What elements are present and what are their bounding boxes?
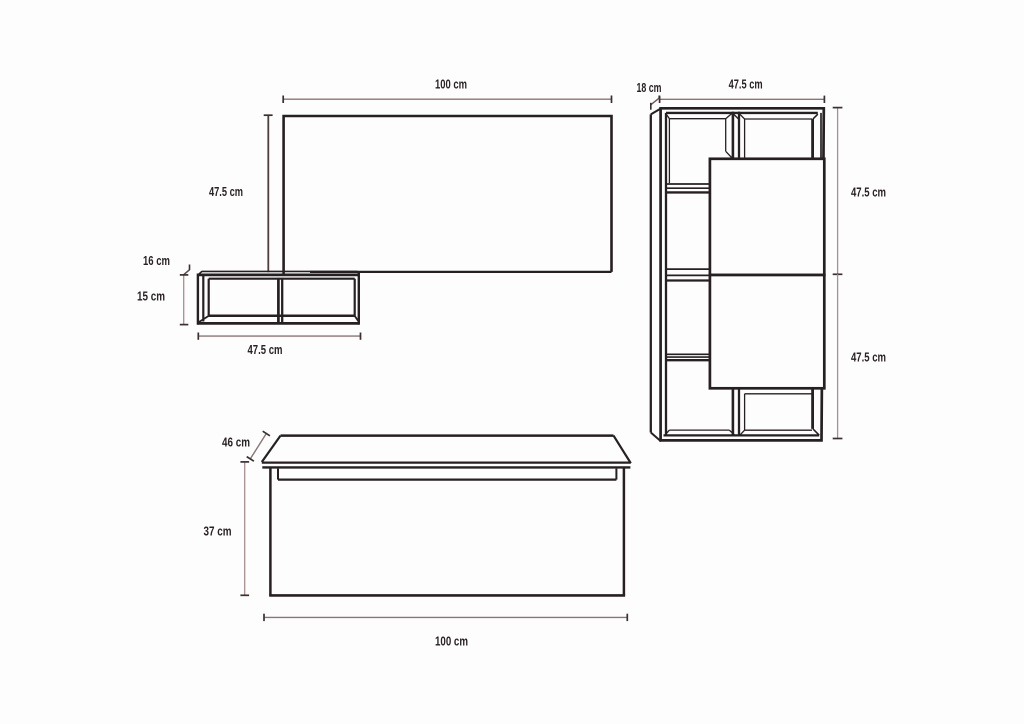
svg-text:100 cm: 100 cm [435,77,467,92]
svg-text:47.5 cm: 47.5 cm [729,77,763,92]
svg-text:47.5 cm: 47.5 cm [209,184,243,199]
svg-text:37 cm: 37 cm [204,524,232,539]
svg-text:47.5 cm: 47.5 cm [851,185,886,200]
svg-text:18 cm: 18 cm [637,80,662,95]
svg-text:100 cm: 100 cm [435,634,468,649]
svg-text:47.5 cm: 47.5 cm [248,342,283,357]
svg-text:46 cm: 46 cm [222,434,250,449]
svg-text:16 cm: 16 cm [143,253,170,268]
svg-text:15 cm: 15 cm [137,289,165,304]
svg-text:47.5 cm: 47.5 cm [851,350,886,365]
